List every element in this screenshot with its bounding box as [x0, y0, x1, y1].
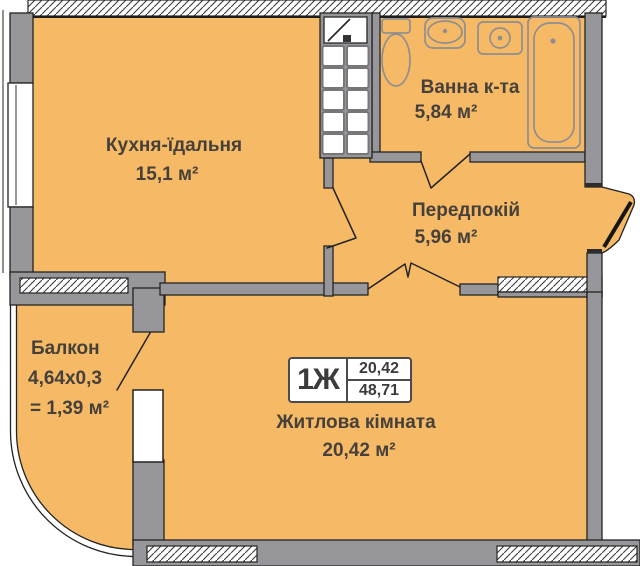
living-left-wall [133, 460, 164, 545]
balcony-dimensions: 4,64х0,3 [28, 368, 102, 390]
entrance-jamb-top [585, 183, 602, 187]
balcony-area: = 1,39 м² [30, 398, 109, 420]
apartment-stamp: 1Ж 20,42 48,71 [288, 357, 412, 403]
balcony-door-leaf [133, 390, 163, 462]
stamp-living-area: 20,42 [348, 359, 410, 379]
floor-plan: Кухня-їдальня 15,1 м² Ванна к-та 5,84 м²… [0, 0, 640, 566]
bath-bottom-wall-right [470, 152, 585, 162]
living-room-label: Житлова кімната [276, 412, 435, 434]
stamp-total-area: 48,71 [348, 379, 410, 401]
apartment-areas: 20,42 48,71 [346, 359, 410, 401]
vent-top-box-marker [343, 35, 351, 42]
kitchen-balcony-wall-hatch [20, 278, 128, 293]
top-wall-hatched [28, 0, 606, 16]
right-wall-upper [585, 13, 602, 187]
floor-plan-drawing [0, 0, 640, 566]
hall-living-wall-stub [460, 284, 498, 295]
living-right-wall [587, 292, 602, 545]
kitchen-partition-upper [324, 158, 333, 188]
vent-bath-divider-wall [372, 13, 380, 158]
bath-bottom-wall-left [370, 152, 421, 162]
kitchen-label: Кухня-їдальня [106, 135, 242, 157]
left-wall-lower [10, 207, 33, 275]
hallway-area: 5,96 м² [415, 227, 478, 249]
bathroom-label: Ванна к-та [421, 77, 520, 99]
kitchen-partition-lower [324, 246, 333, 296]
entrance-jamb-bottom [587, 249, 602, 253]
right-wall-stub [587, 253, 602, 297]
living-room-area: 20,42 м² [322, 440, 395, 462]
ventilation-block [320, 13, 372, 158]
kitchen-area: 15,1 м² [136, 164, 199, 186]
kitchen-window [8, 83, 33, 207]
balcony-label: Балкон [31, 338, 100, 360]
apartment-type: 1Ж [290, 359, 346, 401]
bottom-wall-hatch-left [147, 546, 257, 562]
bottom-wall-hatch-right [497, 546, 637, 562]
left-wall-upper [10, 13, 33, 83]
kitchen-living-wall [160, 283, 368, 295]
hallway-label: Передпокій [412, 200, 520, 222]
bathroom-area: 5,84 м² [415, 102, 478, 124]
